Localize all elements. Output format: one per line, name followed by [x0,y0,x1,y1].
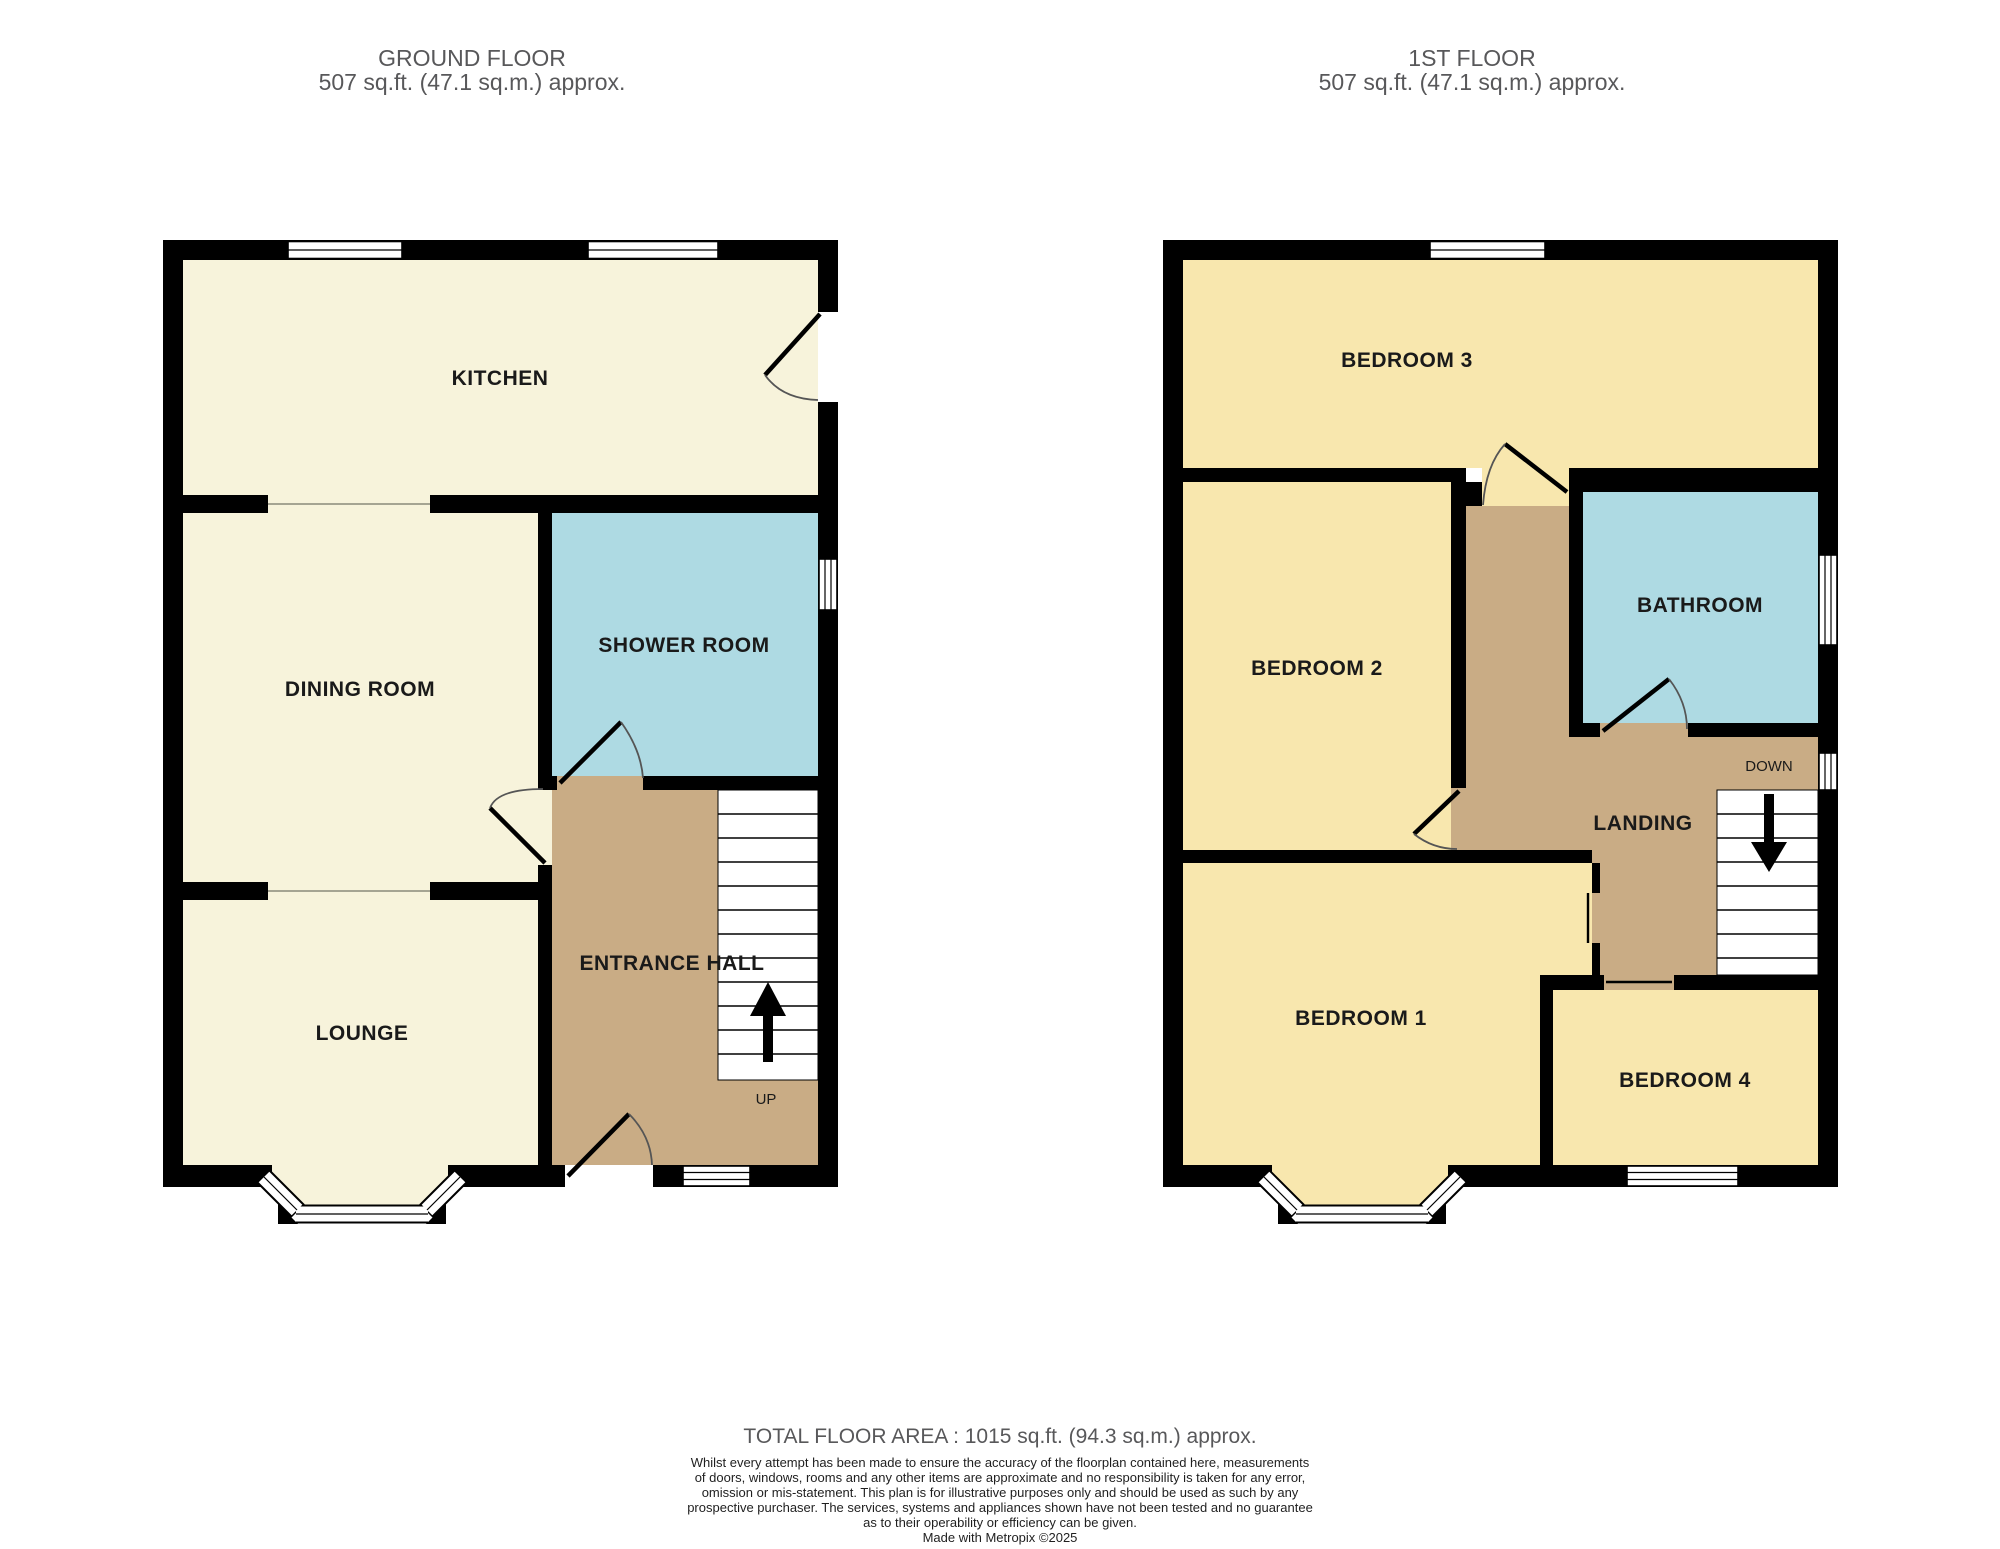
up-label: UP [756,1091,777,1108]
disclaimer-line: of doors, windows, rooms and any other i… [695,1470,1306,1485]
entrance-hall-label: ENTRANCE HALL [580,952,765,975]
wall [1540,975,1818,990]
window [1819,555,1837,645]
dining-room-label: DINING ROOM [285,678,435,701]
ground-floor-plan: KITCHEN DINING ROOM SHOWER ROOM LOUNGE E… [163,240,838,1224]
bathroom-label: BATHROOM [1637,594,1763,617]
lounge-bay-window [263,1160,461,1224]
wall [1592,863,1600,893]
first-floor-title: 1ST FLOOR [1408,45,1535,71]
landing-label: LANDING [1593,812,1692,835]
wall [1569,468,1818,492]
window [1819,753,1837,790]
wall [1451,468,1466,788]
kitchen-door-opening [818,312,838,402]
ground-floor-area: 507 sq.ft. (47.1 sq.m.) approx. [319,69,626,95]
wall [163,240,838,260]
disclaimer-line: as to their operability or efficiency ca… [863,1515,1137,1530]
bedroom1-bay-window [1263,1160,1461,1224]
staircase-down [1717,790,1818,975]
lounge-label: LOUNGE [316,1022,409,1045]
bedroom1-room [1183,863,1592,975]
first-floor-area: 507 sq.ft. (47.1 sq.m.) approx. [1319,69,1626,95]
footer: TOTAL FLOOR AREA : 1015 sq.ft. (94.3 sq.… [687,1425,1313,1545]
wall [1592,943,1600,975]
bedroom1-label: BEDROOM 1 [1295,1007,1427,1030]
bedroom2-label: BEDROOM 2 [1251,657,1383,680]
wall [1183,850,1592,863]
total-floor-area: TOTAL FLOOR AREA : 1015 sq.ft. (94.3 sq.… [743,1425,1256,1448]
wall [1183,468,1455,482]
wall [1540,975,1553,1165]
disclaimer-line: Whilst every attempt has been made to en… [691,1455,1310,1470]
wall [1818,240,1838,1187]
disclaimer-line: prospective purchaser. The services, sys… [687,1500,1313,1515]
floorplan-canvas: GROUND FLOOR 507 sq.ft. (47.1 sq.m.) app… [0,0,2000,1549]
disclaimer-line: omission or mis-statement. This plan is … [702,1485,1299,1500]
first-floor-plan: BEDROOM 3 BEDROOM 2 BATHROOM LANDING BED… [1163,240,1838,1224]
bedroom3-label: BEDROOM 3 [1341,349,1473,372]
hall-dining-opening [538,790,552,865]
shower-room-label: SHOWER ROOM [598,634,769,657]
bedroom1-room [1183,975,1540,1165]
kitchen-label: KITCHEN [452,367,549,390]
wall [163,240,183,1187]
wall [1163,240,1183,1187]
ground-floor-title: GROUND FLOOR [378,45,566,71]
bedroom3-room [1183,260,1818,468]
wall [1569,468,1583,737]
down-label: DOWN [1745,758,1793,775]
floorplan-page: GROUND FLOOR 507 sq.ft. (47.1 sq.m.) app… [0,0,2000,1549]
bedroom4-label: BEDROOM 4 [1619,1069,1751,1092]
metropix-credit: Made with Metropix ©2025 [923,1530,1078,1545]
window [1627,1166,1738,1186]
staircase-up [718,790,818,1080]
shower-door-opening [557,776,643,790]
landing-corridor [1466,506,1569,863]
bedroom3-door-opening [1482,468,1569,506]
window [819,559,837,610]
window [683,1166,750,1186]
